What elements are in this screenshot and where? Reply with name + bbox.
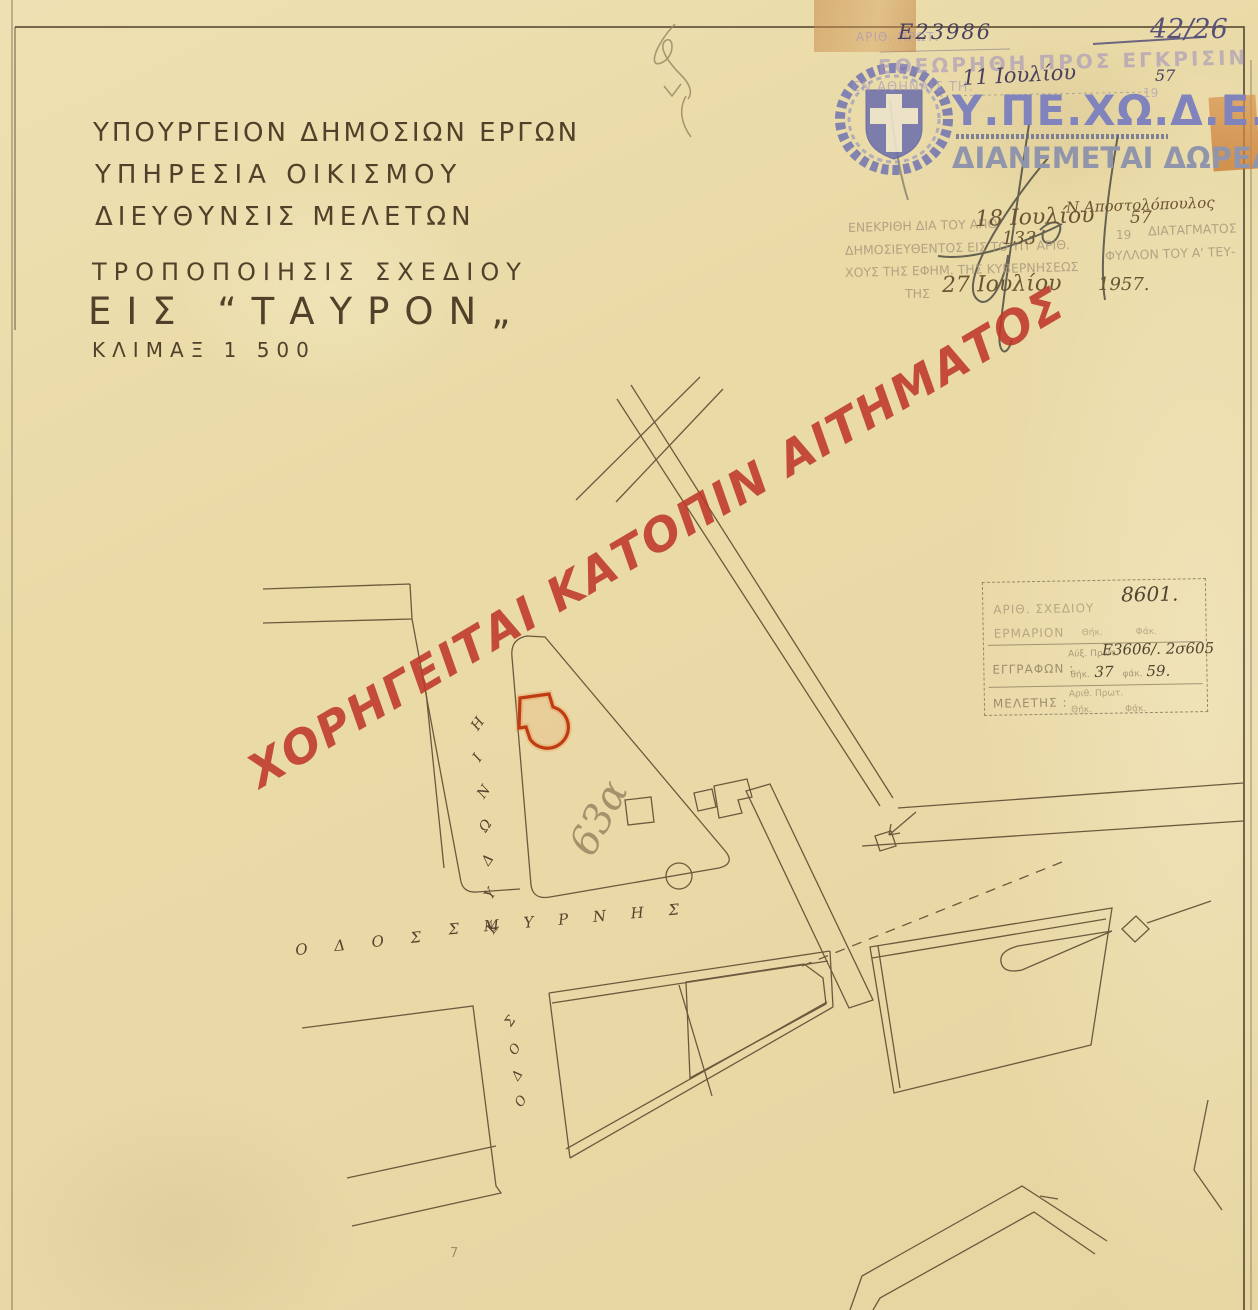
archive-divider-2 — [989, 683, 1203, 688]
archive-cabinet-thik: Θήκ. — [1082, 628, 1103, 638]
archive-documents-fak-label: φάκ. — [1122, 669, 1142, 679]
approval-gazette-number: 133 — [1002, 228, 1036, 249]
archive-documents-thik-value: 37 — [1094, 663, 1113, 681]
ministry-line-3: ΔΙΕΥΘΥΝΣΙΣ ΜΕΛΕΤΩΝ — [95, 202, 476, 232]
ministry-line-2: ΥΠΗΡΕΣΙΑ ΟΙΚΙΣΜΟΥ — [95, 160, 462, 190]
approval-line4-printed: ΤΗΣ — [905, 286, 930, 301]
review-year-printed: 19 — [1143, 86, 1158, 100]
highlighted-parcel — [519, 694, 568, 748]
archive-study-label: ΜΕΛΕΤΗΣ : — [993, 695, 1068, 710]
approval-year-printed: 19 — [1116, 228, 1131, 242]
archive-documents-fak-value: 59. — [1146, 662, 1170, 680]
review-year-handwritten: 57 — [1155, 66, 1175, 85]
review-stamp-place: ΕΝ ΑΘΗΝΑΙΣ ΤΗ. — [852, 80, 974, 95]
plan-subject-line-2: ΕΙΣ “ΤΑΥΡΟΝ„ — [88, 290, 525, 333]
ministry-line-1: ΥΠΟΥΡΓΕΙΟΝ ΔΗΜΟΣΙΩΝ ΕΡΓΩΝ — [93, 118, 580, 148]
approval-line1-suffix: ΔΙΑΤΑΓΜΑΤΟΣ — [1148, 220, 1237, 238]
approval-decree-year: 57 — [1130, 208, 1152, 228]
emblem-cross-horizontal — [870, 108, 918, 124]
archive-documents-label: ΕΓΓΡΑΦΩΝ : — [992, 661, 1074, 676]
scanned-plan-sheet: ΥΠΟΥΡΓΕΙΟΝ ΔΗΜΟΣΙΩΝ ΕΡΓΩΝ ΥΠΗΡΕΣΙΑ ΟΙΚΙΣ… — [0, 0, 1258, 1310]
sheet-number: 42/26 — [1150, 14, 1228, 45]
archive-cabinet-label: ΕΡΜΑΡΙΟΝ — [994, 626, 1065, 641]
agency-acronym: Υ.ΠΕ.ΧΩ.Δ.Ε. — [952, 86, 1258, 135]
archive-study-sub: Αριθ. Πρωτ. — [1069, 689, 1124, 700]
archive-documents-thik-label: θήκ. — [1070, 670, 1090, 680]
pencil-scribble — [654, 24, 691, 137]
agency-free-distribution: ΔΙΑΝΕΜΕΤΑΙ ΔΩΡΕΑΝ — [952, 141, 1258, 175]
archive-study-fak: Φάκ. — [1125, 704, 1146, 714]
protocol-number: Ε23986 — [898, 20, 992, 44]
archive-cabinet-fak: Φάκ. — [1136, 627, 1157, 637]
archive-documents-value: Ε3606/. 2σ605 — [1102, 639, 1214, 659]
approval-publication-year: 1957. — [1098, 274, 1150, 295]
small-pencil-note: 7 — [450, 1246, 458, 1261]
plan-lines — [263, 377, 1243, 1310]
plan-scale: ΚΛΙΜΑΞ 1 500 — [92, 338, 316, 362]
archive-index-box: ΑΡΙΘ. ΣΧΕΔΙΟΥ 8601. ΕΡΜΑΡΙΟΝ Θήκ. Φάκ. Ε… — [982, 578, 1208, 716]
archive-plan-number-label: ΑΡΙΘ. ΣΧΕΔΙΟΥ — [993, 601, 1094, 617]
agency-microtext-bar — [956, 134, 1168, 139]
archive-study-thik: Θήκ. — [1071, 705, 1092, 715]
archive-plan-number-value: 8601. — [1121, 582, 1179, 607]
plan-subject-line-1: ΤΡΟΠΟΠΟΙΗΣΙΣ ΣΧΕΔΙΟΥ — [92, 258, 528, 286]
